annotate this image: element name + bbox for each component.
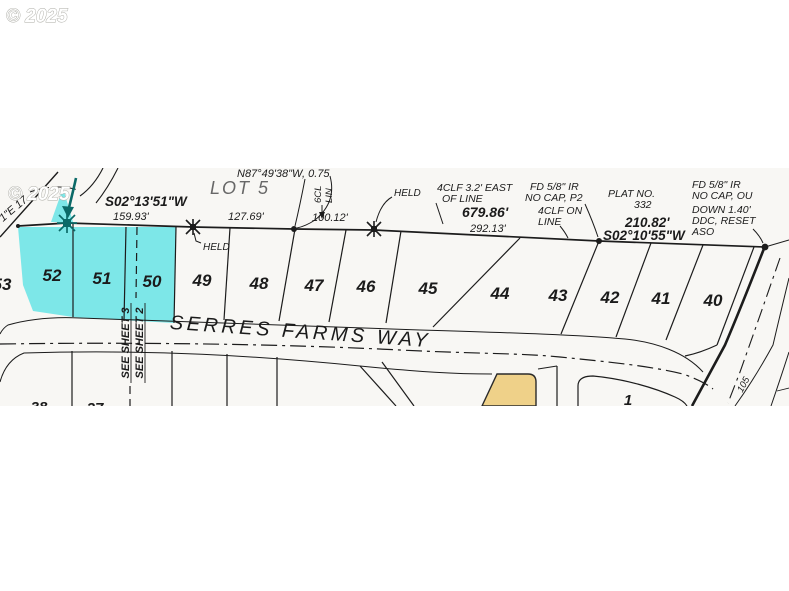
held-label-2: HELD xyxy=(394,188,421,199)
distance-679-label: 679.86' xyxy=(462,204,509,220)
distance-292-label: 292.13' xyxy=(469,223,507,235)
lot-47-label: 47 xyxy=(304,276,325,295)
see-sheet-3-label: SEE SHEET 3 xyxy=(120,308,132,379)
lot-43-label: 43 xyxy=(548,286,568,305)
distance-159-label: 159.93' xyxy=(113,211,150,223)
distance-127-label: 127.69' xyxy=(228,211,265,223)
fd-right-label-2: NO CAP, OU xyxy=(692,190,753,202)
lot-46-label: 46 xyxy=(356,277,376,296)
copyright-watermark-top: © 2025 xyxy=(6,6,68,27)
monument-dot-2 xyxy=(596,238,602,244)
monument-dot-3 xyxy=(762,244,769,251)
lot-44-label: 44 xyxy=(490,284,510,303)
plat-no-label-2: 332 xyxy=(634,199,652,211)
lot5-label: LOT 5 xyxy=(210,178,270,198)
top-crop-mask xyxy=(0,0,789,168)
fence-6cl-label-1: 6CL xyxy=(313,186,324,203)
see-sheet-2-label: SEE SHEET 2 xyxy=(134,308,146,379)
held-label-1: HELD xyxy=(203,242,230,253)
lot-53-label: 53 xyxy=(0,275,12,294)
bottom-crop-mask xyxy=(0,406,789,591)
lot-48-label: 48 xyxy=(249,274,269,293)
lot-41-label: 41 xyxy=(651,289,671,308)
bearing-s021351-label: S02°13'51"W xyxy=(105,194,188,209)
fd-p2-label-2: NO CAP, P2 xyxy=(525,192,583,204)
bearing-s021055-label: S02°10'55"W xyxy=(603,228,686,243)
lot-45-label: 45 xyxy=(418,279,438,298)
fd-right-label-5: ASO xyxy=(691,226,714,238)
lot-52-label: 52 xyxy=(43,266,62,285)
copyright-watermark-map: © 2025 xyxy=(8,184,70,205)
plat-map-viewport: 1"E 17 S02°13'51"W 159.93' N87°49'38"W, … xyxy=(0,0,789,591)
fence-6cl-label-2: LIN xyxy=(324,188,335,203)
lot-51-label: 51 xyxy=(93,269,112,288)
distance-100-label: 100.12' xyxy=(312,212,349,224)
lot-40-label: 40 xyxy=(703,291,723,310)
lot-42-label: 42 xyxy=(600,288,620,307)
corner-dot-west xyxy=(16,224,20,228)
plat-map-canvas: 1"E 17 S02°13'51"W 159.93' N87°49'38"W, … xyxy=(0,0,789,591)
lot-49-label: 49 xyxy=(192,271,212,290)
lot-50-label: 50 xyxy=(143,272,162,291)
clf-on-line-label-2: LINE xyxy=(538,216,562,228)
monument-dot-1 xyxy=(291,226,297,232)
